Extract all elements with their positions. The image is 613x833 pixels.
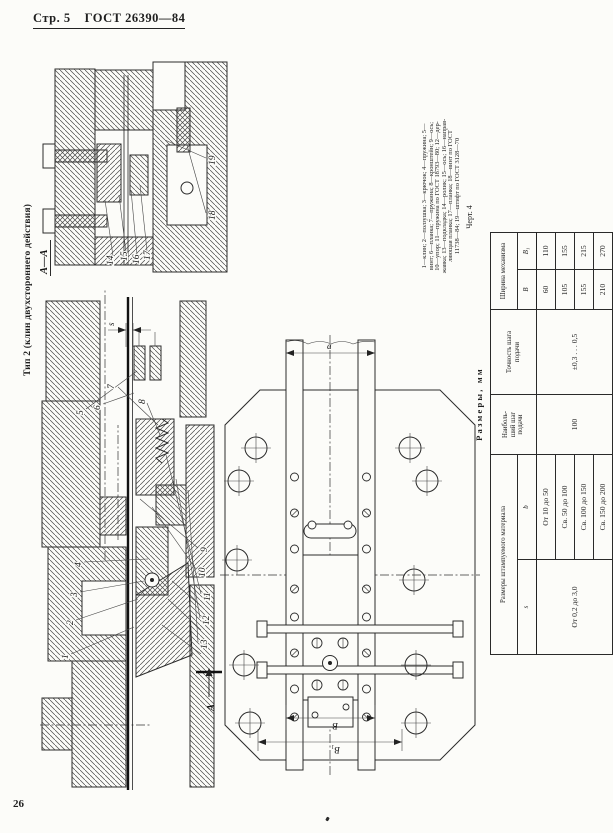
legend: 1—клин; 2—ползушка; 3—крючок; 4—пружина;… <box>422 97 461 295</box>
col-header-width: Ширина механизма <box>491 232 518 309</box>
plan-view-drawing: А А <box>190 335 482 775</box>
page-header-page: Стр. 5 <box>33 11 71 25</box>
col-header-B1: В₁ <box>518 232 537 269</box>
guide-rod <box>265 625 455 633</box>
table-title: Размеры, мм <box>474 348 484 460</box>
legend-line: 11738—84; 19—штифт по ГОСТ 3128—70 <box>455 97 462 295</box>
cell-B: 60 <box>537 270 556 310</box>
cell-B1: 110 <box>537 232 556 269</box>
cut-arrow-label: А <box>206 704 217 712</box>
col-header-s: s <box>518 560 537 655</box>
dimensions-table: Размеры штампуемого материала Наиболь- ш… <box>490 232 613 655</box>
cell-B: 210 <box>594 270 613 310</box>
scanned-gost-page: { "page": { "header_left": "Стр. 5", "he… <box>0 0 613 833</box>
callout-14: 14 <box>106 255 116 265</box>
screw <box>177 108 190 152</box>
upper-die <box>42 301 126 787</box>
page-header-doc: ГОСТ 26390—84 <box>85 11 186 25</box>
table-row: От 0,2 до 3,0 От 10 до 50 100 ±0,3 . . .… <box>537 232 556 654</box>
callout-6: 6 <box>93 405 103 410</box>
cell-feed-step: 100 <box>537 395 613 455</box>
dim-label-B1: В₁ <box>331 745 340 755</box>
scan-speck <box>325 817 330 822</box>
cell-accuracy: ±0,3 . . . 0,5 <box>537 310 613 395</box>
cell-B1: 270 <box>594 232 613 269</box>
cell-B: 105 <box>556 270 575 310</box>
callout-1: 1 <box>61 654 71 659</box>
section-view-label: А—А <box>39 249 50 275</box>
callout-8: 8 <box>138 399 148 404</box>
drawing-title: Тип 2 (клин двухстороннего действия) <box>23 204 33 376</box>
dim-label-B: В <box>332 721 338 731</box>
col-header-b: b <box>518 455 537 560</box>
callout-2: 2 <box>66 620 76 625</box>
page-header: Стр. 5ГОСТ 26390—84 <box>33 11 185 29</box>
cell-b-range: Св. 50 до 100 <box>556 455 575 560</box>
cell-b-range: Св. 150 до 200 <box>594 455 613 560</box>
page-number: 26 <box>13 798 24 810</box>
rotated-drawing-sheet: Тип 2 (клин двухстороннего действия) <box>20 60 610 800</box>
callout-16: 16 <box>132 254 142 264</box>
cell-b-range: От 10 до 50 <box>537 455 556 560</box>
col-header-feed-step: Наиболь- ший шаг подачи <box>491 395 537 455</box>
col-header-B: В <box>518 270 537 310</box>
bracket <box>136 419 174 495</box>
cell-B1: 155 <box>556 232 575 269</box>
callout-5: 5 <box>76 410 86 415</box>
col-header-accuracy: Точность шага подачи <box>491 310 537 395</box>
cut-arrow-top: А <box>196 668 222 712</box>
cell-b-range: Св. 100 до 150 <box>575 455 594 560</box>
cell-s-range: От 0,2 до 3,0 <box>537 560 613 655</box>
section-aa-drawing: А—А 14 15 <box>35 60 230 280</box>
callout-7: 7 <box>107 383 117 389</box>
dim-label-a: a <box>327 341 332 351</box>
dowel-pin <box>181 182 193 194</box>
callout-15: 15 <box>120 251 130 261</box>
callout-4: 4 <box>74 562 84 567</box>
cell-B: 155 <box>575 270 594 310</box>
figure-caption: Черт. 4 <box>465 186 474 248</box>
col-header-material: Размеры штампуемого материала <box>491 455 518 655</box>
callout-17: 17 <box>143 249 153 260</box>
cell-B1: 215 <box>575 232 594 269</box>
callout-19: 19 <box>208 155 218 165</box>
dim-label-s: s <box>106 322 116 326</box>
callout-18: 18 <box>208 210 218 220</box>
section-aa-body <box>43 62 227 272</box>
